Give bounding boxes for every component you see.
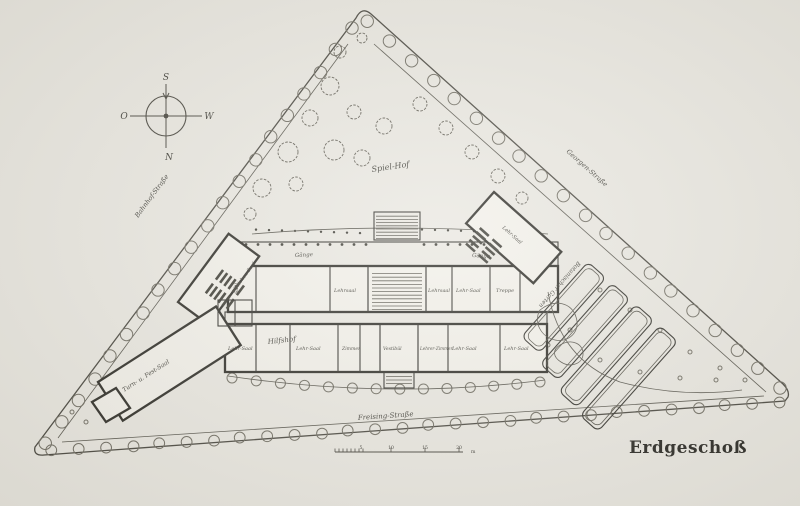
tree-icon bbox=[253, 179, 271, 197]
tree-icon bbox=[435, 243, 438, 246]
tree-icon bbox=[181, 437, 192, 448]
tree-icon bbox=[370, 424, 381, 435]
tree-icon bbox=[365, 243, 368, 246]
label-room-u2: Lehrsaal bbox=[427, 288, 450, 294]
label-street-bottom: Freising-Straße bbox=[357, 410, 414, 422]
tree-icon bbox=[359, 232, 361, 234]
compass-south: S bbox=[163, 73, 169, 83]
tree-icon bbox=[104, 350, 116, 362]
tree-icon bbox=[638, 370, 642, 374]
tree-icon bbox=[56, 416, 68, 428]
tree-icon bbox=[354, 150, 370, 166]
tree-icon bbox=[168, 262, 180, 274]
tree-icon bbox=[376, 118, 392, 134]
courtyard-trees bbox=[244, 33, 528, 220]
tree-icon bbox=[622, 247, 634, 259]
tree-icon bbox=[347, 105, 361, 119]
label-room-zimmer: Zimmer bbox=[341, 346, 361, 352]
label-room-treppe: Treppe bbox=[496, 288, 514, 294]
scale-tick-15: 15 bbox=[422, 445, 428, 451]
tree-icon bbox=[202, 220, 214, 232]
compass-east: O bbox=[120, 112, 128, 122]
tree-icon bbox=[611, 407, 622, 418]
tree-icon bbox=[334, 46, 346, 58]
compass-rose: S N O W bbox=[120, 73, 214, 163]
label-gaenge-left: Gänge bbox=[295, 252, 314, 259]
tree-icon bbox=[346, 231, 348, 233]
tree-icon bbox=[434, 229, 436, 231]
tree-icon bbox=[268, 229, 270, 231]
tree-icon bbox=[465, 145, 479, 159]
tree-icon bbox=[512, 379, 522, 389]
tree-icon bbox=[353, 243, 356, 246]
tree-icon bbox=[341, 243, 344, 246]
tree-icon bbox=[278, 142, 298, 162]
tree-icon bbox=[120, 328, 132, 340]
tree-icon bbox=[257, 243, 260, 246]
label-room-l2: Lehr-Saal bbox=[295, 346, 321, 352]
tree-icon bbox=[227, 373, 237, 383]
tree-icon bbox=[405, 55, 417, 67]
label-room-l3: Lehr-Saal bbox=[451, 346, 477, 352]
tree-icon bbox=[774, 397, 785, 408]
tree-icon bbox=[439, 121, 453, 135]
tree-icon bbox=[459, 243, 462, 246]
scale-tick-10: 10 bbox=[388, 445, 394, 451]
tree-icon bbox=[383, 35, 395, 47]
tree-icon bbox=[774, 382, 786, 394]
scale-tick-5: 5 bbox=[360, 445, 363, 451]
floor-plan-svg: S N O W bbox=[0, 0, 800, 506]
label-room-u3: Lehr-Saal bbox=[455, 288, 481, 294]
scale-bar: 5 10 15 20 m bbox=[335, 445, 476, 455]
tree-icon bbox=[491, 169, 505, 183]
tree-icon bbox=[289, 177, 303, 191]
tree-icon bbox=[70, 410, 74, 414]
tree-icon bbox=[321, 77, 339, 95]
label-lehrerzimmer: Lehrer-Zimmer bbox=[419, 346, 454, 351]
tree-icon bbox=[101, 442, 112, 453]
tree-icon bbox=[324, 140, 344, 160]
tree-icon bbox=[447, 229, 449, 231]
compass-west: W bbox=[204, 112, 214, 122]
tree-icon bbox=[128, 441, 139, 452]
tree-icon bbox=[600, 227, 612, 239]
label-room-l4: Lehr-Saal bbox=[503, 346, 529, 352]
tree-icon bbox=[185, 241, 197, 253]
tree-icon bbox=[209, 435, 220, 446]
tree-icon bbox=[709, 324, 721, 336]
tree-icon bbox=[137, 307, 149, 319]
tree-icon bbox=[317, 243, 320, 246]
tree-icon bbox=[305, 243, 308, 246]
tree-icon bbox=[492, 132, 504, 144]
tree-icon bbox=[333, 231, 335, 233]
tree-icon bbox=[413, 97, 427, 111]
tree-icon bbox=[397, 423, 408, 434]
tree-icon bbox=[255, 228, 257, 230]
tree-icon bbox=[269, 243, 272, 246]
tree-icon bbox=[84, 420, 88, 424]
tree-icon bbox=[423, 243, 426, 246]
tree-icon bbox=[450, 418, 461, 429]
school-building bbox=[92, 192, 561, 422]
scale-unit: m bbox=[471, 450, 476, 455]
tree-icon bbox=[72, 394, 84, 406]
tree-icon bbox=[483, 243, 486, 246]
tree-icon bbox=[314, 66, 326, 78]
tree-icon bbox=[665, 285, 677, 297]
tree-icon bbox=[535, 170, 547, 182]
tree-icon bbox=[598, 358, 602, 362]
label-vestibuel: Vestibül bbox=[383, 346, 402, 352]
tree-icon bbox=[535, 377, 545, 387]
tree-icon bbox=[598, 288, 602, 292]
tree-icon bbox=[342, 425, 353, 436]
tree-icon bbox=[361, 15, 373, 27]
tree-icon bbox=[262, 431, 273, 442]
tree-icon bbox=[250, 154, 262, 166]
tree-icon bbox=[293, 243, 296, 246]
tree-icon bbox=[39, 437, 51, 449]
courtyard-stair bbox=[374, 212, 420, 240]
label-room-u1: Lehrsaal bbox=[333, 288, 356, 294]
tree-icon bbox=[557, 189, 569, 201]
tree-icon bbox=[251, 376, 261, 386]
label-street-left: Bahnhof-Straße bbox=[133, 173, 171, 220]
tree-icon bbox=[644, 267, 656, 279]
tree-icon bbox=[428, 74, 440, 86]
tree-icon bbox=[233, 175, 245, 187]
tree-icon bbox=[678, 376, 682, 380]
tree-icon bbox=[579, 209, 591, 221]
tree-icon bbox=[320, 231, 322, 233]
tree-icon bbox=[447, 243, 450, 246]
tree-icon bbox=[281, 243, 284, 246]
label-room-l1: Lehr-Saal bbox=[227, 346, 253, 352]
tree-icon bbox=[423, 419, 434, 430]
tree-icon bbox=[448, 92, 460, 104]
tree-icon bbox=[718, 366, 722, 370]
tree-icon bbox=[516, 192, 528, 204]
tree-icon bbox=[289, 430, 300, 441]
tree-icon bbox=[752, 362, 764, 374]
scanned-floor-plan-page: S N O W bbox=[0, 0, 800, 506]
tree-icon bbox=[688, 350, 692, 354]
compass-north: N bbox=[164, 153, 174, 163]
tree-icon bbox=[152, 284, 164, 296]
tree-icon bbox=[302, 110, 318, 126]
tree-icon bbox=[531, 412, 542, 423]
tree-icon bbox=[714, 378, 718, 382]
tree-icon bbox=[743, 378, 747, 382]
tree-icon bbox=[421, 228, 423, 230]
tree-icon bbox=[244, 208, 256, 220]
tree-icon bbox=[470, 112, 482, 124]
tree-icon bbox=[329, 243, 332, 246]
scale-tick-20: 20 bbox=[456, 445, 462, 451]
tree-icon bbox=[513, 150, 525, 162]
tree-icon bbox=[460, 230, 462, 232]
tree-icon bbox=[687, 304, 699, 316]
tree-icon bbox=[731, 344, 743, 356]
label-spiel-hof: Spiel-Hof bbox=[371, 160, 412, 174]
tree-icon bbox=[357, 33, 367, 43]
label-street-right: Georgen-Straße bbox=[565, 148, 610, 189]
label-gaenge-right: Gänge bbox=[472, 253, 491, 260]
tree-icon bbox=[317, 428, 328, 439]
figure-caption: Erdgeschoß bbox=[629, 438, 747, 458]
